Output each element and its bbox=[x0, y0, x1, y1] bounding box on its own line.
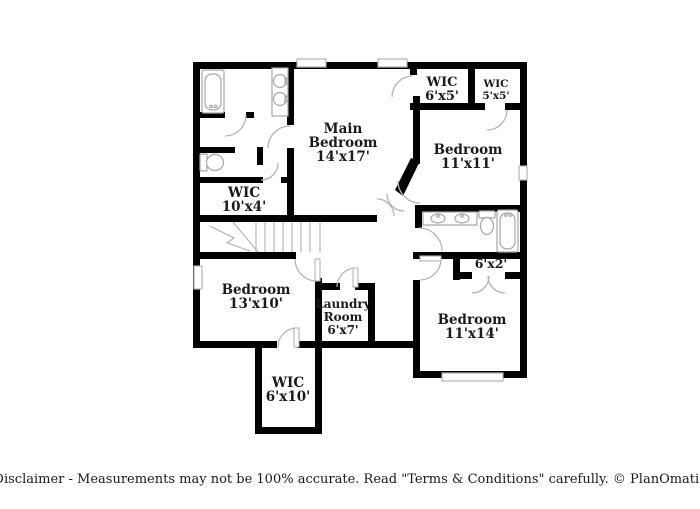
room-dims: 6'x7' bbox=[327, 323, 358, 337]
window bbox=[442, 373, 503, 381]
room-label-wic-5x5: WIC 5'x5' bbox=[482, 78, 509, 102]
window bbox=[378, 59, 407, 67]
room-label-bedroom-11x11: Bedroom 11'x11' bbox=[434, 142, 503, 172]
room-dims: 11'x11' bbox=[441, 156, 495, 172]
room-dims: 5'x5' bbox=[482, 90, 509, 102]
door-leaf bbox=[315, 259, 320, 281]
room-dims: 6'x2' bbox=[475, 256, 508, 271]
disclaimer-text: Disclaimer - Measurements may not be 100… bbox=[0, 472, 700, 487]
window bbox=[297, 59, 326, 67]
room-label-closet-6x2: 6'x2' bbox=[475, 256, 508, 271]
page-background bbox=[0, 0, 700, 509]
room-label-bedroom-13x10: Bedroom 13'x10' bbox=[222, 282, 291, 312]
bathtub-icon bbox=[497, 210, 518, 252]
toilet-icon bbox=[200, 154, 224, 171]
door-leaf bbox=[294, 328, 299, 347]
window bbox=[519, 166, 527, 180]
window bbox=[194, 266, 202, 289]
room-name-line: Laundry bbox=[315, 297, 371, 311]
room-dims: 10'x4' bbox=[222, 199, 267, 215]
room-dims: 6'x10' bbox=[266, 389, 311, 405]
room-name-line: Room bbox=[324, 310, 363, 324]
room-dims: 11'x14' bbox=[445, 326, 499, 342]
room-name-line: WIC bbox=[482, 78, 508, 90]
floor-plan: Main Bedroom 14'x17' WIC 6'x5' WIC 5'x5'… bbox=[0, 0, 700, 509]
double-sink-vanity-icon bbox=[272, 68, 288, 116]
double-sink-vanity-icon bbox=[423, 212, 477, 225]
room-label-bedroom-11x14: Bedroom 11'x14' bbox=[438, 312, 507, 342]
bathtub-icon bbox=[202, 70, 224, 113]
toilet-icon bbox=[479, 211, 495, 235]
room-dims: 13'x10' bbox=[229, 296, 283, 312]
room-label-wic-6x5: WIC 6'x5' bbox=[425, 75, 459, 104]
room-name-line: WIC bbox=[425, 75, 457, 90]
room-label-wic-6x10: WIC 6'x10' bbox=[266, 375, 311, 405]
room-dims: 14'x17' bbox=[316, 149, 370, 165]
door-leaf bbox=[353, 268, 358, 287]
room-dims: 6'x5' bbox=[425, 89, 459, 104]
room-label-wic-10x4: WIC 10'x4' bbox=[222, 185, 267, 215]
door-leaf bbox=[420, 256, 441, 261]
